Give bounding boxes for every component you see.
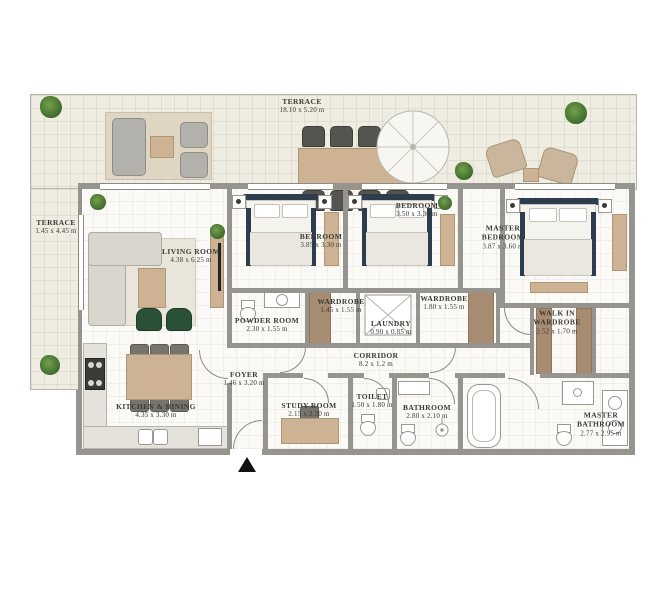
room-dims: 0.90 x 0.85 m (370, 328, 411, 337)
room-label-powder-room: POWDER ROOM 2.30 x 1.55 m (235, 316, 299, 334)
nightstand-icon (506, 199, 520, 213)
entry-arrow-icon (238, 457, 256, 472)
plant-icon (40, 355, 60, 375)
room-label-foyer: FOYER 1.46 x 3.20 m (223, 370, 264, 388)
room-name: TERRACE (35, 218, 76, 227)
plant-icon (210, 224, 225, 239)
study-desk-icon (281, 418, 339, 444)
side-table-icon (523, 168, 539, 182)
wall-bottom-right (262, 449, 635, 455)
wall-toilet-bath (392, 378, 397, 449)
room-name: MASTER BEDROOM (477, 223, 529, 242)
dresser-icon (440, 214, 455, 266)
wall-corridor-bottom-1 (263, 373, 303, 378)
sink-icon (608, 396, 622, 410)
dining-table-icon (126, 354, 192, 400)
outdoor-chair-icon (180, 122, 208, 148)
room-label-bedroom-2: BEDROOM 3.50 x 3.30 m (396, 201, 438, 219)
room-dims: 4.38 x 6.25 m (162, 256, 220, 265)
wall-bottom-left (78, 449, 230, 455)
room-label-kitchen-dining: KITCHEN & DINING 4.35 x 3.30 m (116, 402, 196, 420)
dresser-icon (612, 214, 627, 271)
nightstand-icon (598, 199, 612, 213)
bed-icon (246, 194, 316, 266)
room-label-terrace-main: TERRACE 18.10 x 5.20 m (280, 97, 325, 115)
room-label-laundry: LAUNDRY 0.90 x 0.85 m (370, 319, 411, 337)
room-dims: 2.80 x 2.10 m (403, 412, 451, 421)
window-living (100, 183, 210, 190)
wall-bed2-right (458, 189, 463, 288)
wall-study-toilet (348, 378, 353, 449)
wall-walkin-right (592, 305, 596, 375)
wall-powder-right (305, 288, 309, 345)
room-dims: 1.50 x 1.80 m (351, 401, 392, 410)
room-name: FOYER (223, 370, 264, 379)
toilet-icon (400, 424, 416, 446)
nightstand-icon (348, 195, 362, 209)
room-dims: 2.15 x 2.30 m (281, 410, 336, 419)
bench-icon (530, 282, 588, 293)
room-name: TOILET (351, 392, 392, 401)
wall-wardrobe2-right (496, 288, 500, 345)
vanity-icon (398, 381, 430, 395)
wall-right (629, 183, 635, 455)
wall-corridor-bottom-2 (328, 373, 364, 378)
room-name: POWDER ROOM (235, 316, 299, 325)
sofa-chaise-icon (88, 232, 162, 266)
room-name: BATHROOM (403, 403, 451, 412)
room-dims: 2.77 x 2.95 m (575, 429, 627, 438)
wall-corridor-top (227, 343, 530, 348)
plant-icon (438, 196, 452, 210)
wall-corridor-bottom-5 (540, 373, 635, 378)
room-label-study-room: STUDY ROOM 2.15 x 2.30 m (281, 401, 336, 419)
room-dims: 18.10 x 5.20 m (280, 106, 325, 115)
terrace-chair-icon (330, 126, 353, 147)
wall-bed1-bed2 (343, 189, 348, 288)
outdoor-sofa-icon (112, 118, 146, 176)
toilet-icon (360, 414, 376, 436)
shower-drain-icon (573, 388, 582, 397)
room-dims: 1.45 x 1.55 m (317, 306, 364, 315)
room-dims: 1.46 x 3.20 m (223, 379, 264, 388)
room-name: BEDROOM (396, 201, 438, 210)
room-label-wardrobe-1: WARDROBE 1.45 x 1.55 m (317, 297, 364, 315)
room-name: LAUNDRY (370, 319, 411, 328)
room-dims: 3.50 x 3.30 m (396, 210, 438, 219)
kitchen-sink-icon (138, 429, 153, 445)
window-bedroom1 (248, 183, 333, 190)
terrace-chair-icon (302, 126, 325, 147)
nightstand-icon (318, 195, 332, 209)
plant-icon (90, 194, 106, 210)
tv-unit-icon (210, 228, 224, 308)
room-dims: 8.2 x 1.2 m (354, 360, 399, 369)
floor-plan: TERRACE 18.10 x 5.20 m TERRACE 1.45 x 4.… (0, 0, 660, 595)
wall-left-lower (76, 390, 82, 455)
toilet-icon (556, 424, 572, 446)
room-label-walk-in-wardrobe: WALK IN WARDROBE 2.52 x 1.70 m (531, 308, 583, 336)
wardrobe-cabinet-icon (468, 291, 494, 345)
kitchen-sink-icon (153, 429, 168, 445)
wall-bedrooms-bottom (227, 288, 500, 293)
armchair-icon (136, 308, 162, 331)
room-dims: 1.45 x 4.45 m (35, 227, 76, 236)
room-label-master-bedroom: MASTER BEDROOM 3.87 x 3.60 m (477, 223, 529, 251)
outdoor-table-icon (150, 136, 174, 158)
window-master (515, 183, 615, 190)
room-name: BEDROOM (300, 232, 342, 241)
plant-icon (565, 102, 587, 124)
room-name: KITCHEN & DINING (116, 402, 196, 411)
room-label-wardrobe-2: WARDROBE 1.80 x 1.55 m (420, 294, 467, 312)
umbrella-icon (374, 108, 452, 186)
window-living-side (78, 215, 84, 310)
appliance-icon (198, 428, 222, 446)
room-dims: 3.85 x 3.30 m (300, 241, 342, 250)
room-name: MASTER BATHROOM (575, 410, 627, 429)
room-label-living-room: LIVING ROOM 4.38 x 6.25 m (162, 247, 220, 265)
room-name: LIVING ROOM (162, 247, 220, 256)
wall-foyer-study (263, 378, 268, 449)
room-label-corridor: CORRIDOR 8.2 x 1.2 m (354, 351, 399, 369)
plant-icon (455, 162, 473, 180)
room-name: CORRIDOR (354, 351, 399, 360)
bed-icon (520, 198, 596, 276)
wall-foyer-left (227, 383, 232, 449)
room-label-bedroom-1: BEDROOM 3.85 x 3.30 m (300, 232, 342, 250)
plant-icon (40, 96, 62, 118)
sink-icon (276, 294, 288, 306)
room-name: WARDROBE (420, 294, 467, 303)
room-name: STUDY ROOM (281, 401, 336, 410)
room-dims: 3.87 x 3.60 m (477, 242, 529, 251)
room-label-terrace-side: TERRACE 1.45 x 4.45 m (35, 218, 76, 236)
room-name: WARDROBE (317, 297, 364, 306)
room-name: WALK IN WARDROBE (531, 308, 583, 327)
outdoor-chair-icon (180, 152, 208, 178)
room-label-bathroom: BATHROOM 2.80 x 2.10 m (403, 403, 451, 421)
room-dims: 4.35 x 3.30 m (116, 411, 196, 420)
window-bedroom2 (362, 183, 447, 190)
bathtub-icon (467, 384, 501, 448)
room-dims: 2.30 x 1.55 m (235, 325, 299, 334)
wall-bath-mbath (458, 378, 463, 449)
room-label-toilet: TOILET 1.50 x 1.80 m (351, 392, 392, 410)
coffee-table-icon (138, 268, 166, 308)
wall-master-bottom (500, 303, 635, 308)
stove-icon (85, 358, 105, 390)
room-label-master-bathroom: MASTER BATHROOM 2.77 x 2.95 m (575, 410, 627, 438)
nightstand-icon (232, 195, 246, 209)
room-dims: 2.52 x 1.70 m (531, 327, 583, 336)
wall-living-bed1 (227, 189, 232, 343)
armchair-icon (166, 308, 192, 331)
room-dims: 1.80 x 1.55 m (420, 303, 467, 312)
room-name: TERRACE (280, 97, 325, 106)
